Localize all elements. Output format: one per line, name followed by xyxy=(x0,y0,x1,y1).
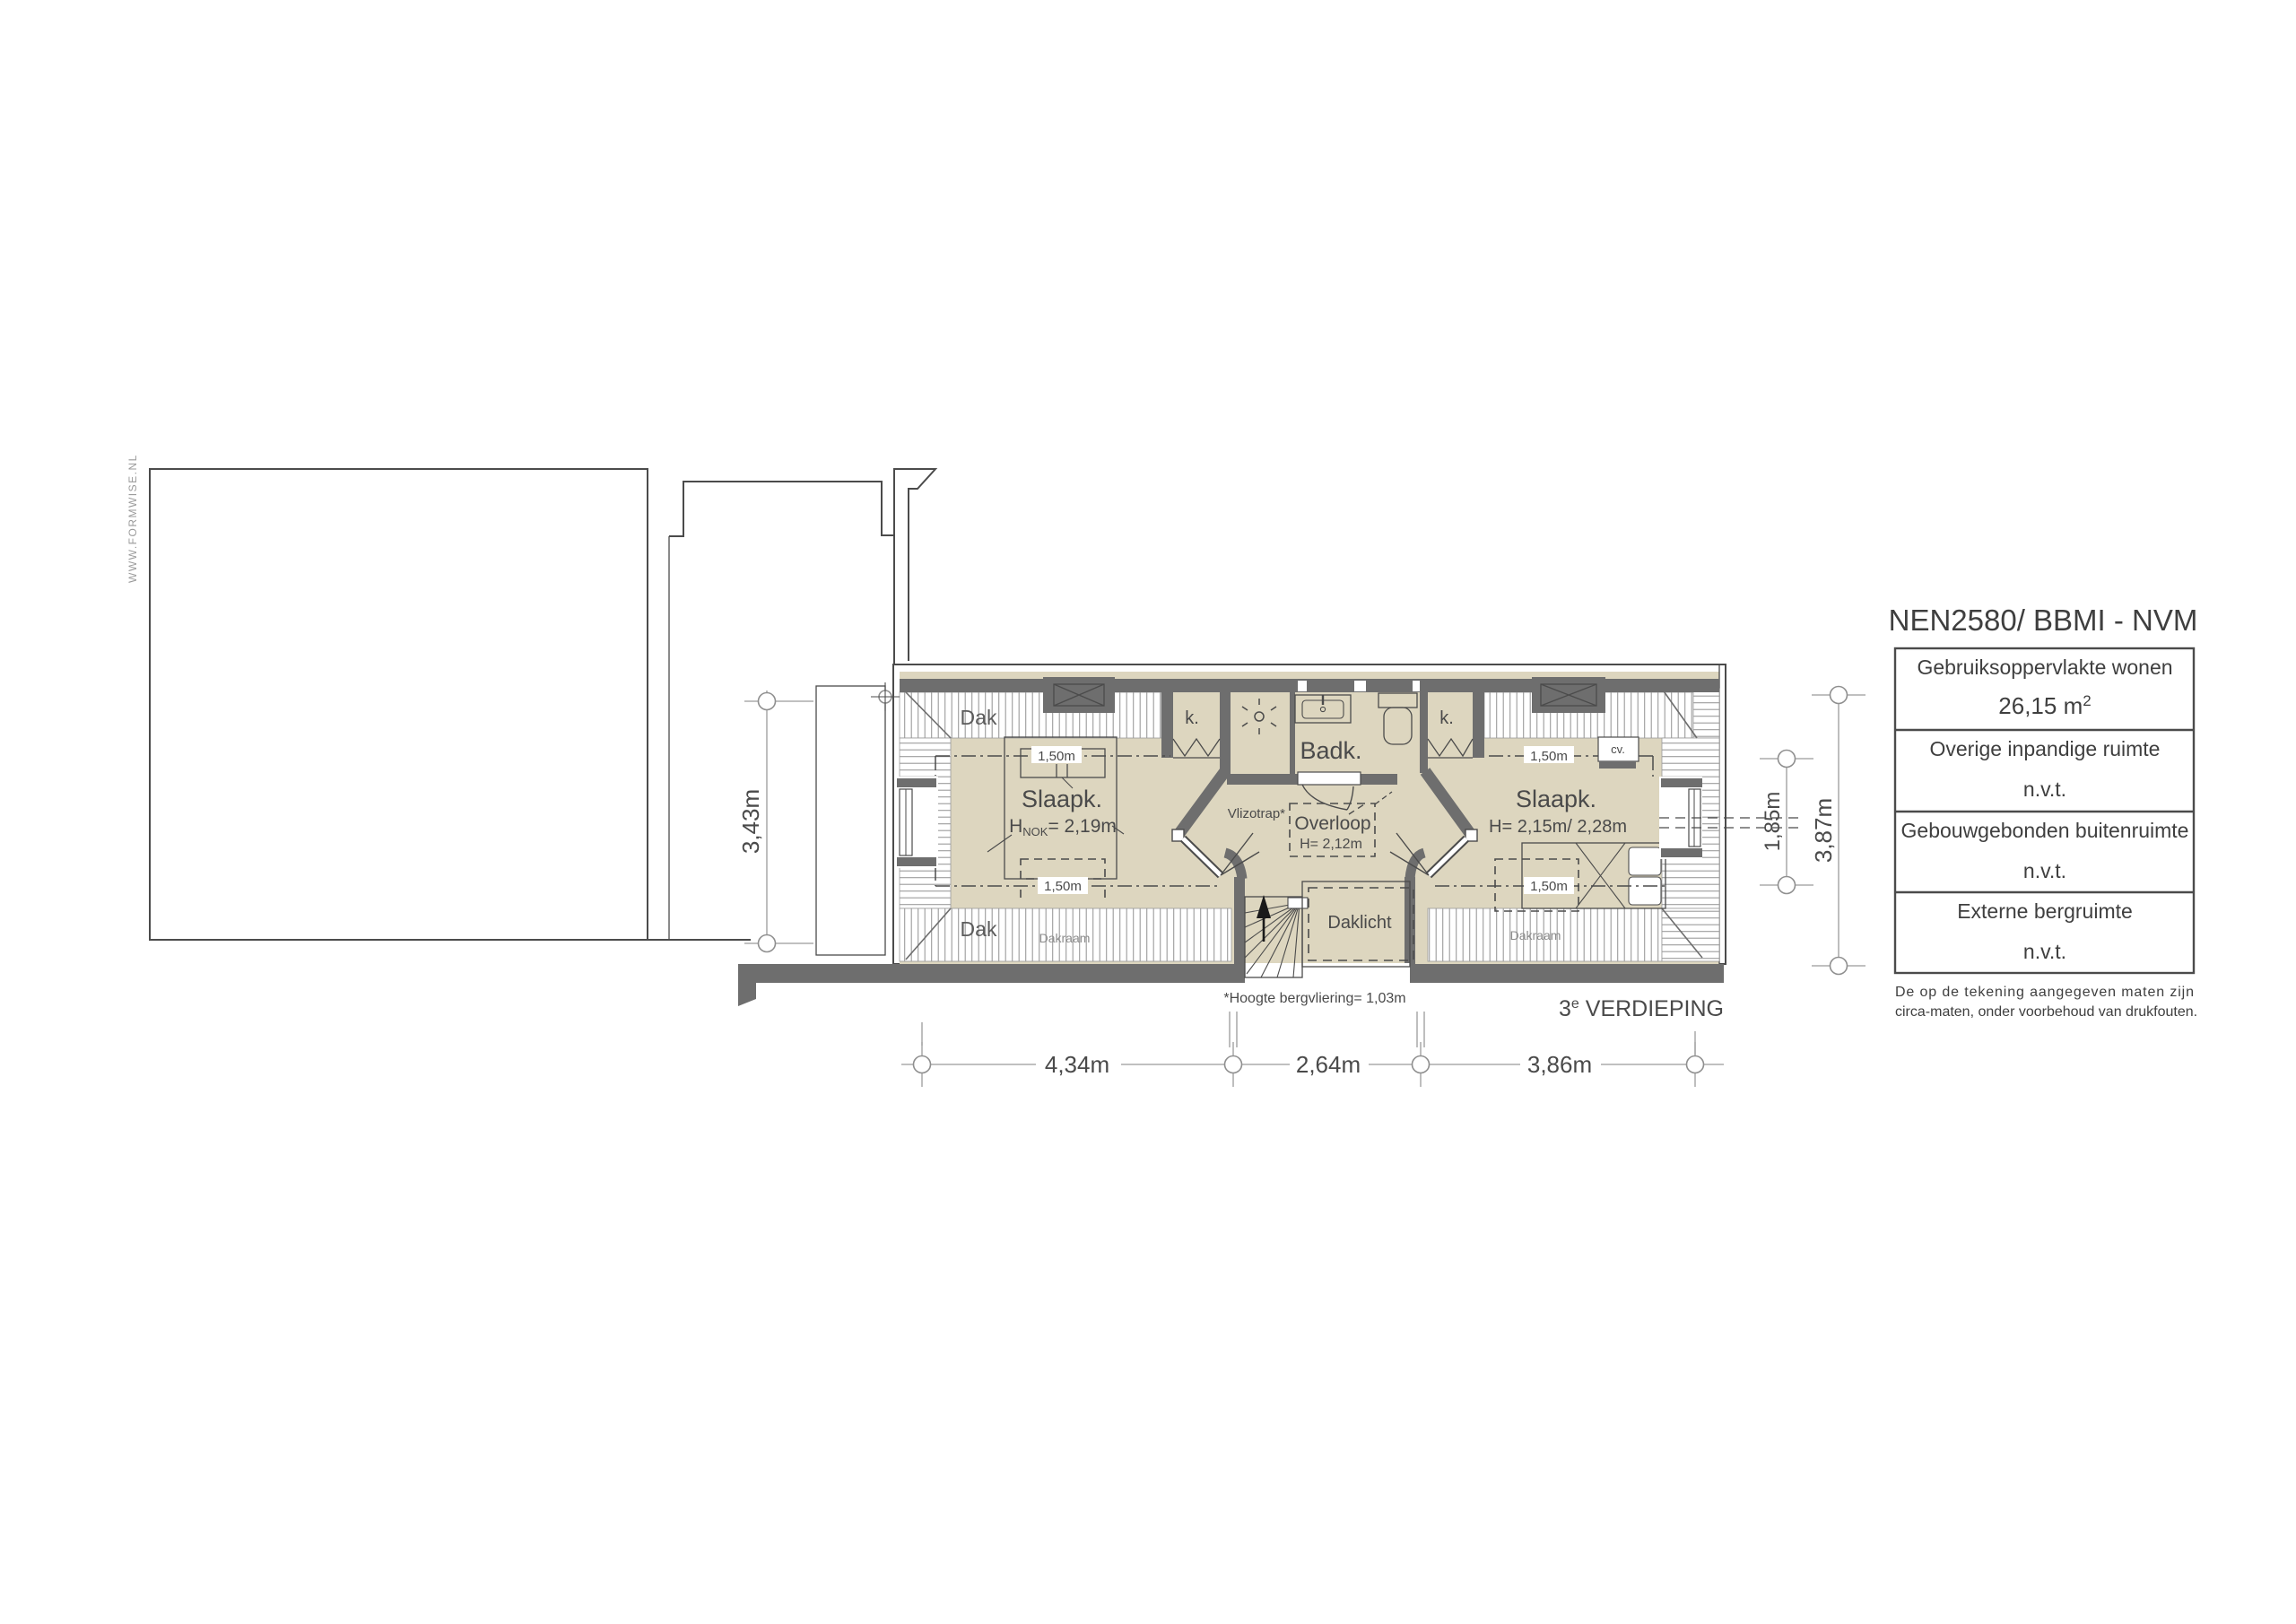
contour-right-bottom-label: 1,50m xyxy=(1530,879,1568,894)
dim-bottom-1: 4,34m xyxy=(1045,1051,1109,1078)
closet-right-label: k. xyxy=(1439,708,1454,728)
cv-unit: cv. xyxy=(1598,737,1639,769)
landing-label: Overloop xyxy=(1294,813,1370,834)
nen-row-1-value: 26,15 m2 xyxy=(1998,692,2091,719)
dakraam-right-label: Dakraam xyxy=(1510,928,1561,942)
bedroom-right-label: Slaapk. xyxy=(1516,786,1596,812)
floor-title: 3e VERDIEPING xyxy=(1559,996,1724,1021)
watermark-text: WWW.FORMWISE.NL xyxy=(126,454,139,583)
nen-row-4-label: Externe bergruimte xyxy=(1957,899,2133,923)
side-annex-outline xyxy=(816,686,885,955)
bergvliering-note: *Hoogte bergvliering= 1,03m xyxy=(1223,991,1405,1006)
nen-row-4-value: n.v.t. xyxy=(2023,940,2066,963)
chimney-right xyxy=(1532,677,1605,713)
vlizotrap-label: Vlizotrap* xyxy=(1228,806,1285,821)
bedroom-right-height: H= 2,15m/ 2,28m xyxy=(1489,817,1627,837)
dimension-left: 3,43m xyxy=(737,682,900,955)
nen-table-footnote-2: circa-maten, onder voorbehoud van drukfo… xyxy=(1895,1004,2197,1020)
nen-row-2-label: Overige inpandige ruimte xyxy=(1930,737,2161,760)
nen-row-1-label: Gebruiksoppervlakte wonen xyxy=(1917,656,2172,679)
nen-row-3-label: Gebouwgebonden buitenruimte xyxy=(1901,819,2189,842)
dimension-right-outer: 3,87m xyxy=(1810,687,1865,975)
bathroom-label: Badk. xyxy=(1300,737,1361,764)
contour-right-top-label: 1,50m xyxy=(1530,749,1568,764)
dim-right-inner-label: 1,85m xyxy=(1761,792,1785,852)
dimension-right-inner: 1,85m xyxy=(1760,751,1813,894)
window-left xyxy=(895,777,938,868)
dim-bottom-3: 3,86m xyxy=(1527,1051,1592,1078)
floorplan-page: WWW.FORMWISE.NL xyxy=(0,0,2296,1624)
dim-bottom-2: 2,64m xyxy=(1296,1051,1361,1078)
bedroom-left-label: Slaapk. xyxy=(1022,786,1102,812)
nen-table-title: NEN2580/ BBMI - NVM xyxy=(1889,604,2198,637)
landing-height: H= 2,12m xyxy=(1300,837,1362,852)
neighbour-wall-outline xyxy=(894,469,935,664)
dak-top-label: Dak xyxy=(961,706,997,729)
floorplan-drawing: WWW.FORMWISE.NL xyxy=(0,0,2296,1624)
closet-left-label: k. xyxy=(1185,708,1199,728)
hatch-top-left xyxy=(900,692,1161,738)
nen-table-footnote-1: De op de tekening aangegeven maten zijn xyxy=(1895,985,2194,1000)
cv-label: cv. xyxy=(1611,743,1625,756)
dim-left-label: 3,43m xyxy=(737,789,764,854)
daklicht-label: Daklicht xyxy=(1327,913,1392,933)
neighbour-step-outline xyxy=(669,482,893,536)
contour-left-top-label: 1,50m xyxy=(1038,749,1075,764)
neighbour-rect xyxy=(150,469,648,940)
nen-table: NEN2580/ BBMI - NVM Gebruiksoppervlakte … xyxy=(1889,604,2198,1020)
contour-left-bottom-label: 1,50m xyxy=(1044,879,1082,894)
dimension-bottom: 4,34m 2,64m 3,86m xyxy=(901,1012,1724,1087)
chimney-left xyxy=(1043,677,1115,713)
hatch-bottom-right xyxy=(1428,908,1719,961)
nen-row-3-value: n.v.t. xyxy=(2023,859,2066,882)
dakraam-left-label: Dakraam xyxy=(1039,931,1091,945)
neighbour-outlines xyxy=(150,469,935,940)
vlizotrap-hatch xyxy=(1298,772,1361,785)
dak-bottom-label: Dak xyxy=(961,917,997,941)
nen-row-2-value: n.v.t. xyxy=(2023,777,2066,801)
dim-right-outer-label: 3,87m xyxy=(1810,798,1837,863)
